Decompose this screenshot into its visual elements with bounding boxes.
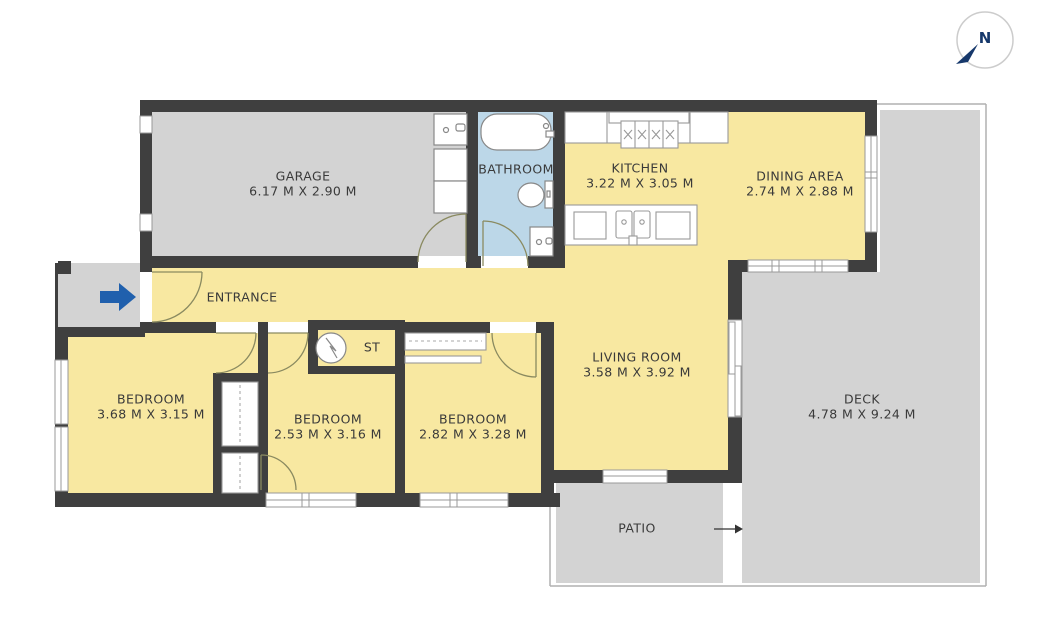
compass-north-label: N [974,29,996,47]
room-label-bedroom2: BEDROOM 2.53 M X 3.16 M [274,412,382,442]
entrance-door-opening [140,272,152,322]
wall-bathroom-west [466,100,478,268]
garage-door-opening [418,256,466,268]
room-dims: 4.78 M X 9.24 M [808,407,916,422]
room-name: GARAGE [249,169,357,184]
bedroom3-door-opening [490,322,536,333]
wall-bedroom2-west [258,322,268,493]
wall-porch-south [55,327,145,337]
bedroom1-door-opening [216,322,256,333]
room-label-living: LIVING ROOM 3.58 M X 3.92 M [583,350,691,380]
deck-area-right [880,110,980,583]
closet-between-bedrooms [222,382,258,493]
room-name: KITCHEN [586,161,694,176]
room-label-deck: DECK 4.78 M X 9.24 M [808,392,916,422]
deck-area-main [742,272,880,583]
wall-living-east [728,260,742,483]
room-dims: 3.22 M X 3.05 M [586,176,694,191]
wall-bedroom1-west [55,330,68,493]
wall-bedroom2-east [395,322,405,493]
room-name: ST [364,341,380,356]
wall-garage-south-a [140,256,418,268]
wall-bedroom3-east [541,322,554,507]
room-name: BEDROOM [419,412,527,427]
bathroom-door-opening [481,256,528,268]
wall-closet-divider [222,446,258,453]
room-name: BEDROOM [274,412,382,427]
room-dims: 2.82 M X 3.28 M [419,427,527,442]
room-label-entrance: ENTRANCE [207,291,278,306]
room-name: DINING AREA [746,169,854,184]
wall-storage-north [308,320,405,330]
room-dims: 3.68 M X 3.15 M [97,407,205,422]
wall-storage-south [308,366,405,374]
room-label-storage: ST [364,341,380,356]
room-label-dining: DINING AREA 2.74 M X 2.88 M [746,169,854,199]
room-dims: 2.74 M X 2.88 M [746,184,854,199]
north-needle-icon [956,44,978,64]
wall-hall-south-b [405,322,490,333]
room-label-garage: GARAGE 6.17 M X 2.90 M [249,169,357,199]
room-name: LIVING ROOM [583,350,691,365]
floor-plan: N GARAGE 6.17 M X 2.90 M BATHROOM KITCHE… [0,0,1046,640]
wall-dining-south [728,260,877,272]
room-name: BEDROOM [97,392,205,407]
room-label-bathroom: BATHROOM [478,163,554,178]
bathroom-floor [478,112,553,256]
storage-floor [318,330,395,366]
bedroom1-door-nook [213,333,258,373]
wall-bedroom1-east [213,373,222,493]
wall-dining-east [865,100,877,272]
room-label-bedroom3: BEDROOM 2.82 M X 3.28 M [419,412,527,442]
wall-living-south [541,470,742,483]
room-name: DECK [808,392,916,407]
wall-bathroom-east [553,100,565,268]
room-dims: 2.53 M X 3.16 M [274,427,382,442]
bedroom2-door-opening [268,322,308,333]
room-name: BATHROOM [478,163,554,178]
wall-bathroom-south-b [528,256,565,268]
wall-south [55,493,560,507]
room-name: PATIO [618,522,655,537]
room-dims: 3.58 M X 3.92 M [583,365,691,380]
room-label-bedroom1: BEDROOM 3.68 M X 3.15 M [97,392,205,422]
wall-hall-south-a [140,322,216,333]
wall-north [140,100,877,112]
wall-garage-west [140,100,152,268]
porch-corner-post [58,261,71,274]
room-dims: 6.17 M X 2.90 M [249,184,357,199]
room-label-kitchen: KITCHEN 3.22 M X 3.05 M [586,161,694,191]
room-label-patio: PATIO [618,522,655,537]
room-name: ENTRANCE [207,291,278,306]
